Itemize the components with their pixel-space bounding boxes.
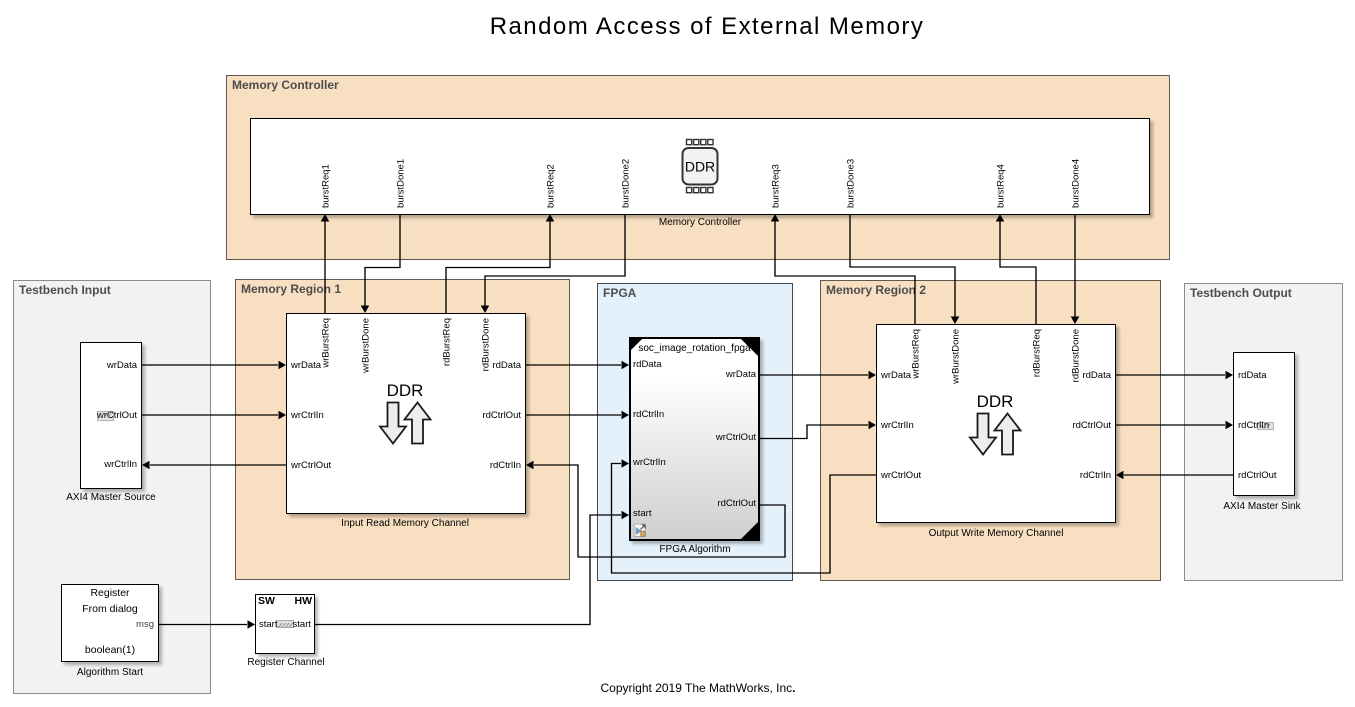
svg-text:wrBurstReq: wrBurstReq bbox=[911, 329, 922, 380]
svg-text:rdBurstReq: rdBurstReq bbox=[442, 318, 453, 366]
svg-text:DDR: DDR bbox=[685, 159, 715, 175]
svg-text:rdBurstDone: rdBurstDone bbox=[1071, 329, 1082, 382]
svg-text:burstReq3: burstReq3 bbox=[771, 164, 782, 208]
svg-text:DDR: DDR bbox=[977, 392, 1014, 411]
svg-text:burstReq1: burstReq1 bbox=[321, 164, 332, 208]
svg-text:rdBurstDone: rdBurstDone bbox=[481, 318, 492, 371]
svg-text:wrBurstDone: wrBurstDone bbox=[361, 318, 372, 374]
svg-text:burstDone4: burstDone4 bbox=[1071, 159, 1082, 208]
svg-text:wrBurstDone: wrBurstDone bbox=[951, 329, 962, 385]
svg-text:burstReq4: burstReq4 bbox=[996, 164, 1007, 208]
svg-text:rdBurstReq: rdBurstReq bbox=[1032, 329, 1043, 377]
svg-text:burstReq2: burstReq2 bbox=[546, 164, 557, 208]
svg-text:burstDone1: burstDone1 bbox=[396, 159, 407, 208]
svg-text:burstDone3: burstDone3 bbox=[846, 159, 857, 208]
svg-text:burstDone2: burstDone2 bbox=[621, 159, 632, 208]
svg-text:wrBurstReq: wrBurstReq bbox=[321, 318, 332, 369]
svg-text:DDR: DDR bbox=[387, 381, 424, 400]
